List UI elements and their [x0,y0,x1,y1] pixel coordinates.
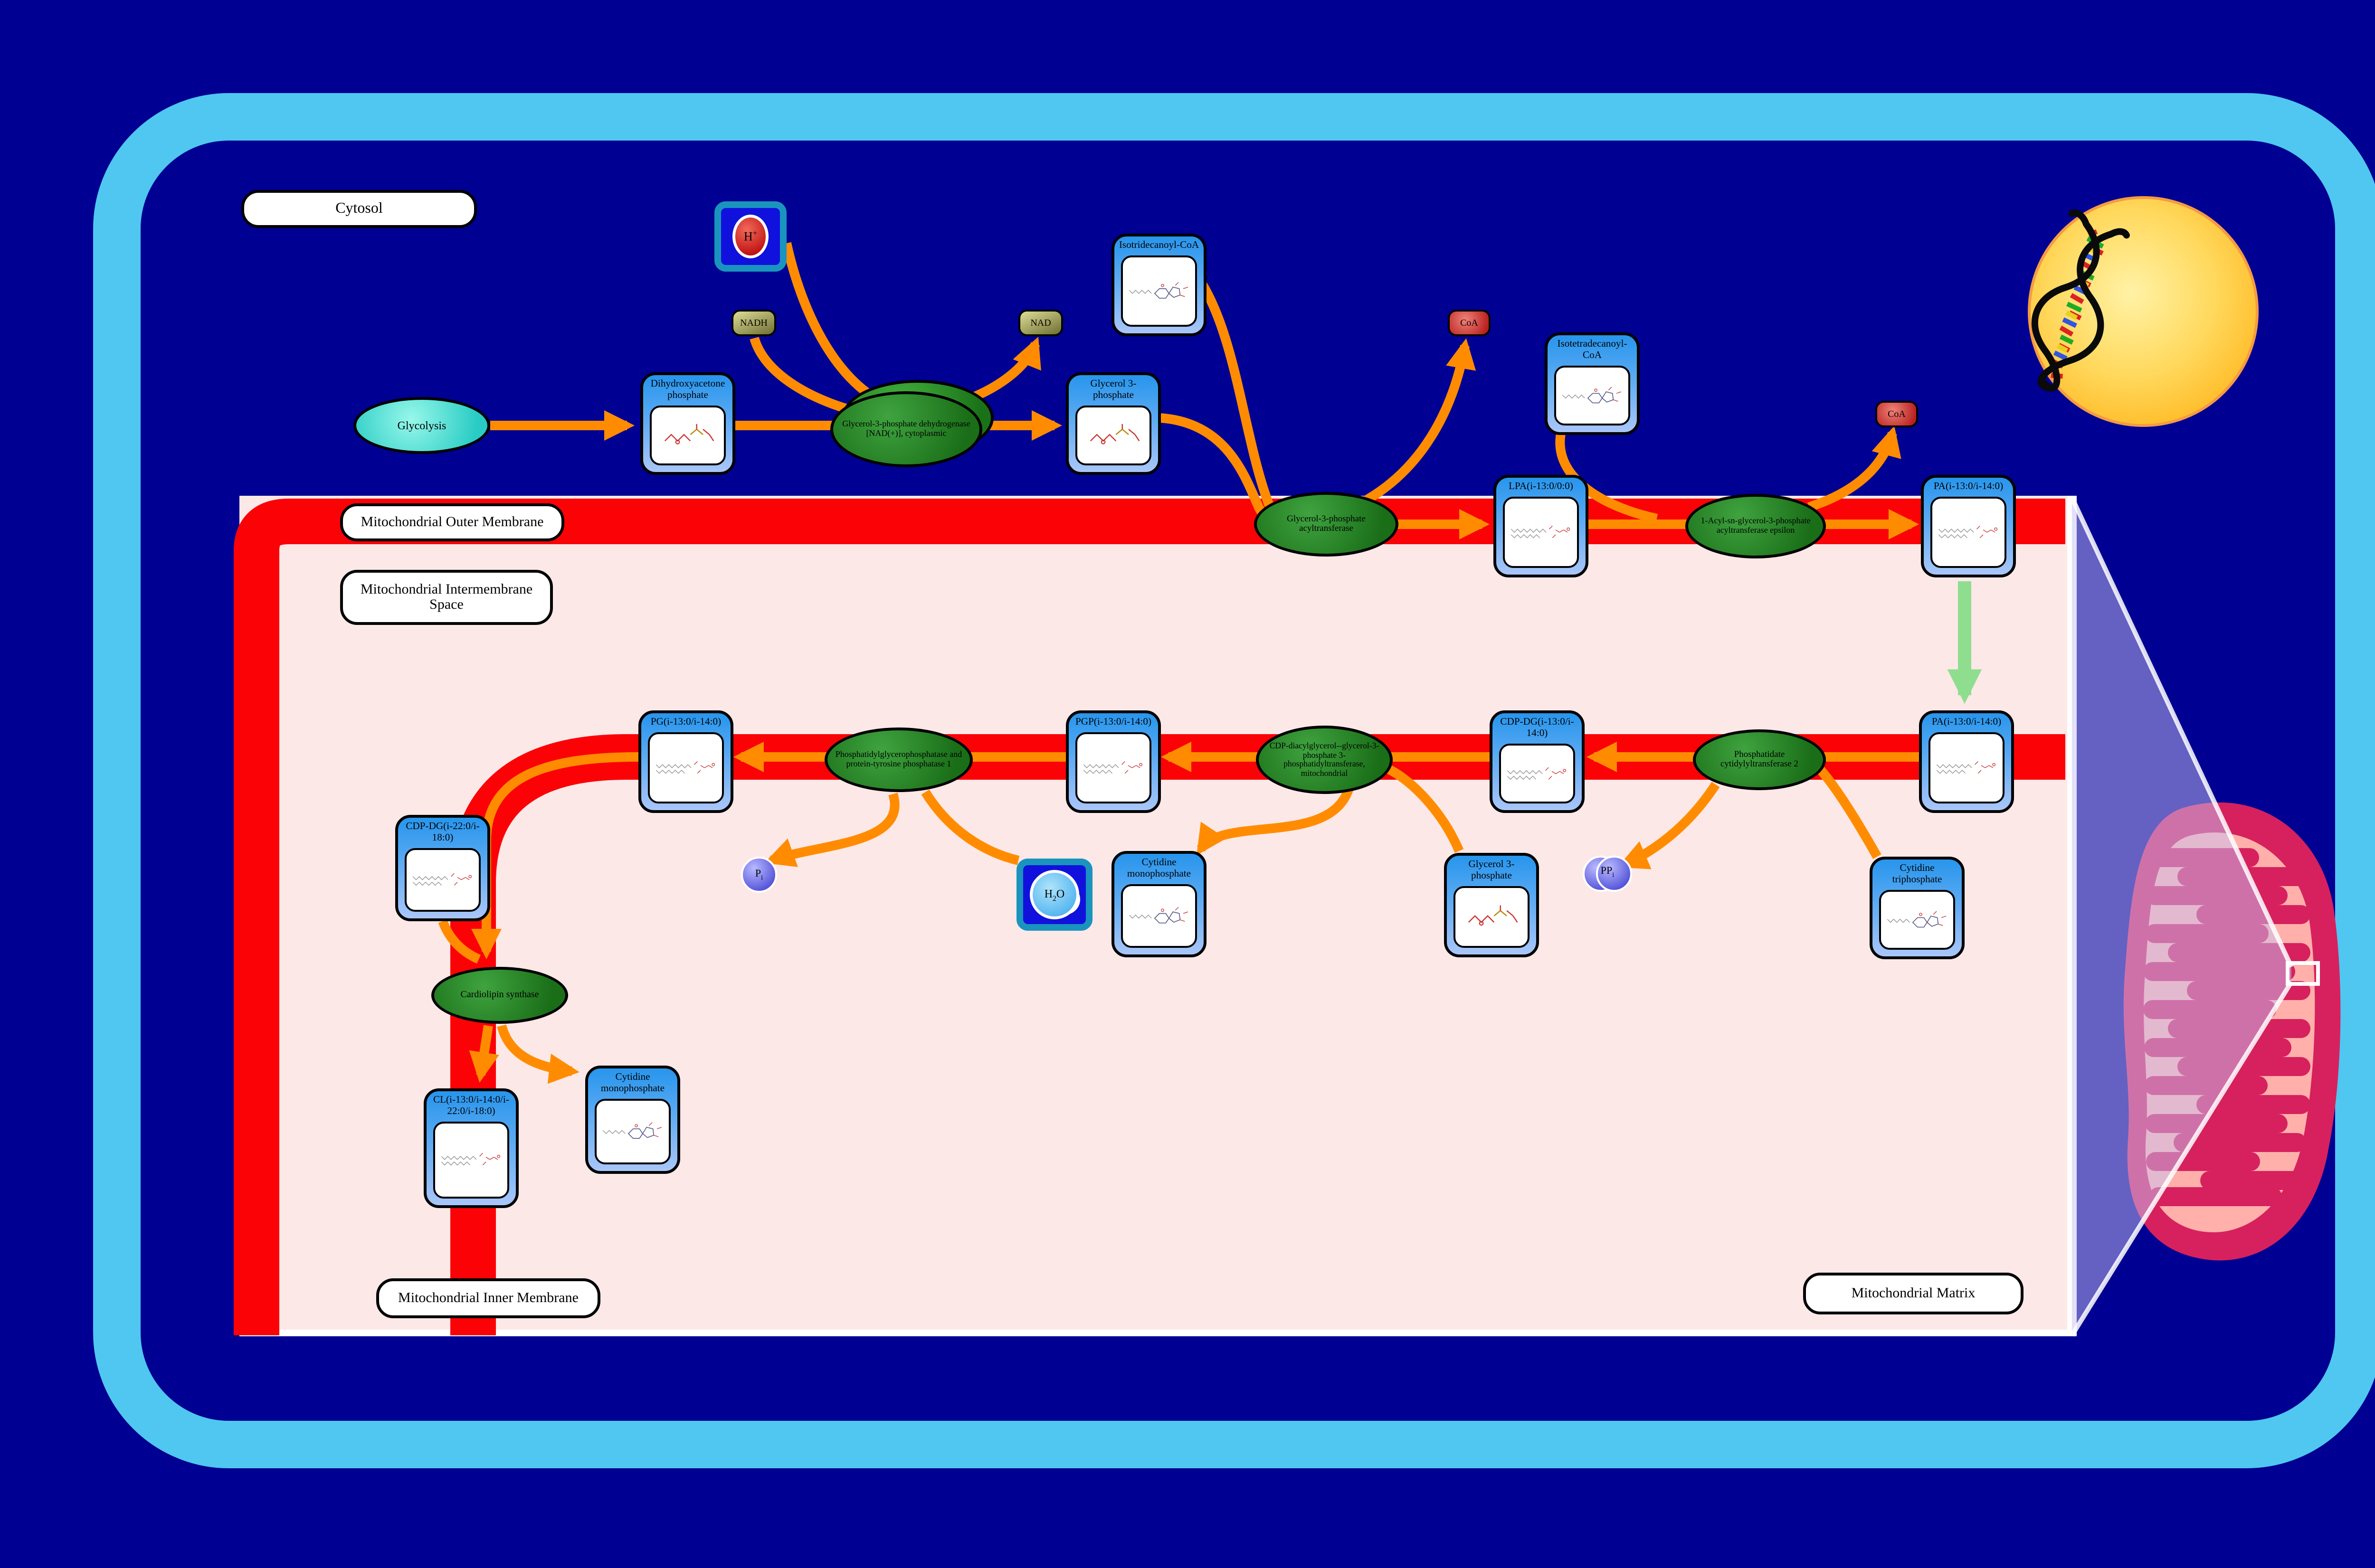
structure-pgp [1075,732,1151,803]
enzyme-gpat[interactable]: Glycerol-3-phosphate acyltransferase [1254,492,1398,557]
structure-acyl-coa [1121,255,1197,327]
metabolite-lpa[interactable]: LPA(i-13:0/0:0) [1493,475,1588,577]
metabolite-cdp-dg-1[interactable]: CDP-DG(i-13:0/i-14:0) [1490,710,1585,813]
metabolite-pa-outer[interactable]: PA(i-13:0/i-14:0) [1921,475,2016,577]
metabolite-cdp-dg-2[interactable]: CDP-DG(i-22:0/i-18:0) [395,815,490,921]
nucleus-icon [2015,198,2257,425]
structure-acyl-coa-2 [1554,365,1630,425]
structure-cmp [1121,884,1197,948]
metabolite-pg[interactable]: PG(i-13:0/i-14:0) [638,710,733,813]
region-label-intermembrane-space: Mitochondrial Intermembrane Space [340,570,553,625]
region-label-outer-membrane: Mitochondrial Outer Membrane [340,503,564,541]
metabolite-isotetradecanoyl-coa[interactable]: Isotetradecanoyl-CoA [1545,332,1640,435]
metabolite-g3p-matrix[interactable]: Glycerol 3-phosphate [1444,853,1539,957]
enzyme-pct2[interactable]: Phosphatidate cytidylyltransferase 2 [1693,729,1826,790]
cofactor-coa-1[interactable]: CoA [1448,310,1491,336]
enzyme-pgp-phosphatase[interactable]: Phosphatidylglycerophosphatase and prote… [825,727,973,792]
structure-pa [1930,497,2006,568]
structure-pg [648,732,724,803]
metabolite-isotridecanoyl-coa[interactable]: Isotridecanoyl-CoA [1111,234,1206,336]
structure-g3p-2 [1453,886,1529,948]
h2o-icon[interactable]: H2O [1016,859,1092,931]
cofactor-coa-2[interactable]: CoA [1875,401,1918,427]
cofactor-nad[interactable]: NAD [1018,310,1063,336]
metabolite-pgp[interactable]: PGP(i-13:0/i-14:0) [1066,710,1161,813]
cell-pathway-diagram: Cytosol Mitochondrial Outer Membrane Mit… [0,0,2375,1568]
structure-cdp-dg-2 [405,848,481,912]
metabolite-pa-inner[interactable]: PA(i-13:0/i-14:0) [1919,710,2014,813]
pi-molecule[interactable]: Pi [741,857,777,893]
ppi-molecule[interactable]: PPi [1583,855,1632,889]
cofactor-nadh[interactable]: NADH [731,310,776,336]
enzyme-gpdh[interactable]: Glycerol-3-phosphate dehydrogenase [NAD(… [830,391,982,467]
region-label-inner-membrane: Mitochondrial Inner Membrane [376,1278,600,1318]
structure-dhap [650,405,726,465]
structure-cdp-dg [1499,743,1575,803]
structure-lpa [1503,497,1579,568]
structure-ctp [1879,889,1955,950]
structure-g3p [1075,405,1151,465]
structure-cmp-2 [595,1098,671,1164]
metabolite-cmp-1[interactable]: Cytidine monophosphate [1111,851,1206,957]
enzyme-cardiolipin-synthase[interactable]: Cardiolipin synthase [431,967,568,1024]
region-label-matrix: Mitochondrial Matrix [1803,1273,2023,1314]
metabolite-cl[interactable]: CL(i-13:0/i-14:0/i-22:0/i-18:0) [424,1088,519,1208]
metabolite-cmp-2[interactable]: Cytidine monophosphate [585,1066,680,1174]
h-plus-icon[interactable]: H+ [714,201,787,272]
pathway-node-glycolysis[interactable]: Glycolysis [353,397,490,454]
structure-pa-2 [1928,732,2004,803]
enzyme-agpat-epsilon[interactable]: 1-Acyl-sn-glycerol-3-phosphate acyltrans… [1685,494,1826,558]
metabolite-g3p-cytosol[interactable]: Glycerol 3-phosphate [1066,372,1161,475]
metabolite-ctp[interactable]: Cytidine triphosphate [1870,857,1965,959]
region-label-cytosol: Cytosol [241,190,477,228]
metabolite-dhap[interactable]: Dihydroxyacetone phosphate [640,372,735,475]
enzyme-cdp-dg-transferase[interactable]: CDP-diacylglycerol--glycerol-3-phosphate… [1256,726,1393,794]
structure-cl [433,1121,509,1199]
